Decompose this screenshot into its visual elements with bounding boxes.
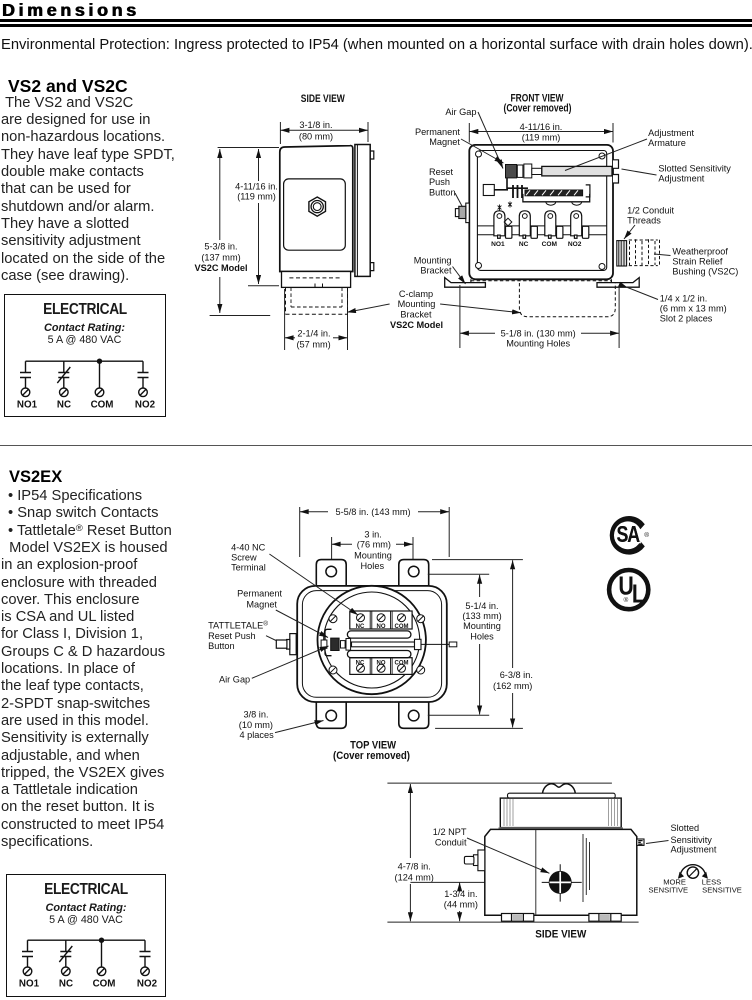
svg-text:COM: COM (90, 400, 113, 411)
svg-text:NO1: NO1 (16, 400, 37, 411)
svg-text:NC: NC (59, 978, 73, 989)
svg-text:Magnet: Magnet (246, 600, 277, 610)
svg-text:Mounting: Mounting (354, 551, 392, 561)
svg-text:(119 mm): (119 mm) (522, 133, 561, 143)
svg-text:1/2 Conduit: 1/2 Conduit (627, 205, 674, 215)
svg-text:NC: NC (519, 241, 529, 248)
svg-text:Air Gap: Air Gap (445, 107, 476, 117)
svg-text:NC: NC (356, 624, 365, 630)
svg-text:5-5/8 in. (143 mm): 5-5/8 in. (143 mm) (335, 507, 410, 517)
svg-text:Bracket: Bracket (420, 265, 452, 275)
svg-text:Holes: Holes (361, 561, 385, 571)
svg-text:Adjustment: Adjustment (648, 128, 694, 138)
svg-text:NO2: NO2 (134, 400, 155, 411)
svg-text:Reset: Reset (429, 167, 453, 177)
svg-text:SIDE VIEW: SIDE VIEW (301, 93, 346, 105)
svg-text:3-1/8 in.: 3-1/8 in. (299, 120, 332, 130)
svg-text:NC: NC (56, 400, 70, 411)
svg-text:(133 mm): (133 mm) (462, 611, 501, 621)
svg-text:(Cover removed): (Cover removed) (333, 750, 410, 762)
svg-text:4-40 NC: 4-40 NC (231, 542, 266, 552)
svg-text:Permanent: Permanent (237, 589, 282, 599)
svg-text:Conduit: Conduit (435, 838, 467, 848)
svg-text:Air Gap: Air Gap (219, 675, 250, 685)
svg-text:Threads: Threads (627, 215, 661, 225)
svg-text:NO2: NO2 (137, 978, 158, 989)
svg-text:Magnet: Magnet (429, 137, 460, 147)
svg-text:L: L (632, 580, 645, 610)
svg-text:Adjustment: Adjustment (671, 845, 717, 855)
svg-text:Slotted Sensitivity: Slotted Sensitivity (658, 164, 731, 174)
svg-text:Strain Relief: Strain Relief (672, 257, 722, 267)
svg-text:4-11/16 in.: 4-11/16 in. (235, 182, 278, 192)
svg-text:Slotted: Slotted (671, 823, 700, 833)
svg-text:Slot 2 places: Slot 2 places (660, 314, 713, 324)
svg-text:®: ® (644, 531, 649, 539)
svg-text:1/2 NPT: 1/2 NPT (433, 827, 467, 837)
svg-text:Holes: Holes (470, 632, 494, 642)
svg-text:COM: COM (542, 241, 558, 248)
svg-text:Bushing (VS2C): Bushing (VS2C) (672, 267, 738, 277)
svg-text:4 places: 4 places (239, 730, 274, 740)
svg-text:SENSITIVE: SENSITIVE (648, 885, 688, 894)
svg-text:1/4 x 1/2 in.: 1/4 x 1/2 in. (660, 294, 708, 304)
svg-text:SIDE VIEW: SIDE VIEW (535, 928, 587, 940)
svg-text:(Cover removed): (Cover removed) (504, 103, 572, 115)
svg-text:TATTLETALE®: TATTLETALE® (208, 620, 268, 631)
svg-text:(124 mm): (124 mm) (395, 872, 434, 882)
svg-text:NO1: NO1 (19, 978, 40, 989)
svg-text:®: ® (624, 596, 629, 604)
svg-text:COM: COM (395, 661, 409, 667)
svg-text:Terminal: Terminal (231, 563, 266, 573)
svg-text:Button: Button (208, 641, 235, 651)
svg-text:NC: NC (356, 661, 365, 667)
svg-text:(10 mm): (10 mm) (239, 720, 273, 730)
svg-text:Mounting Holes: Mounting Holes (506, 338, 570, 348)
svg-text:NO2: NO2 (568, 241, 582, 248)
svg-text:Armature: Armature (648, 138, 686, 148)
svg-text:VS2C Model: VS2C Model (194, 263, 247, 273)
svg-text:4-11/16 in.: 4-11/16 in. (520, 122, 563, 132)
svg-text:(137 mm): (137 mm) (201, 253, 240, 263)
svg-text:6-3/8 in.: 6-3/8 in. (500, 670, 533, 680)
svg-text:Mounting: Mounting (414, 255, 452, 265)
svg-text:2-1/4 in.: 2-1/4 in. (297, 329, 330, 339)
svg-text:NO: NO (377, 624, 386, 630)
svg-text:Reset Push: Reset Push (208, 631, 256, 641)
svg-text:SENSITIVE: SENSITIVE (702, 885, 742, 894)
svg-text:5-1/4 in.: 5-1/4 in. (465, 601, 498, 611)
svg-text:COM: COM (93, 978, 116, 989)
svg-text:3/8 in.: 3/8 in. (243, 710, 268, 720)
svg-text:5-3/8 in.: 5-3/8 in. (204, 242, 237, 252)
svg-text:COM: COM (395, 624, 409, 630)
svg-text:(76 mm): (76 mm) (357, 540, 391, 550)
svg-text:Sensitivity: Sensitivity (671, 835, 713, 845)
svg-text:Adjustment: Adjustment (658, 174, 704, 184)
svg-text:NO: NO (377, 661, 386, 667)
svg-text:(80 mm): (80 mm) (299, 132, 333, 142)
svg-text:1-3/4 in.: 1-3/4 in. (444, 889, 477, 899)
svg-text:NO1: NO1 (491, 241, 505, 248)
svg-text:4-7/8 in.: 4-7/8 in. (398, 862, 431, 872)
svg-text:5-1/8 in. (130 mm): 5-1/8 in. (130 mm) (501, 328, 576, 338)
svg-text:Push: Push (429, 177, 450, 187)
svg-text:(162 mm): (162 mm) (493, 681, 532, 691)
svg-text:Screw: Screw (231, 553, 257, 563)
svg-text:Mounting: Mounting (463, 621, 501, 631)
svg-text:(57 mm): (57 mm) (296, 340, 330, 350)
svg-text:Permanent: Permanent (415, 127, 460, 137)
svg-text:3 in.: 3 in. (364, 530, 381, 540)
svg-text:(44 mm): (44 mm) (444, 900, 478, 910)
svg-text:(6 mm x 13 mm): (6 mm x 13 mm) (660, 304, 727, 314)
svg-text:Button: Button (429, 187, 456, 197)
svg-text:Weatherproof: Weatherproof (672, 247, 728, 257)
svg-text:SA: SA (616, 522, 640, 548)
svg-text:(119 mm): (119 mm) (237, 192, 276, 202)
